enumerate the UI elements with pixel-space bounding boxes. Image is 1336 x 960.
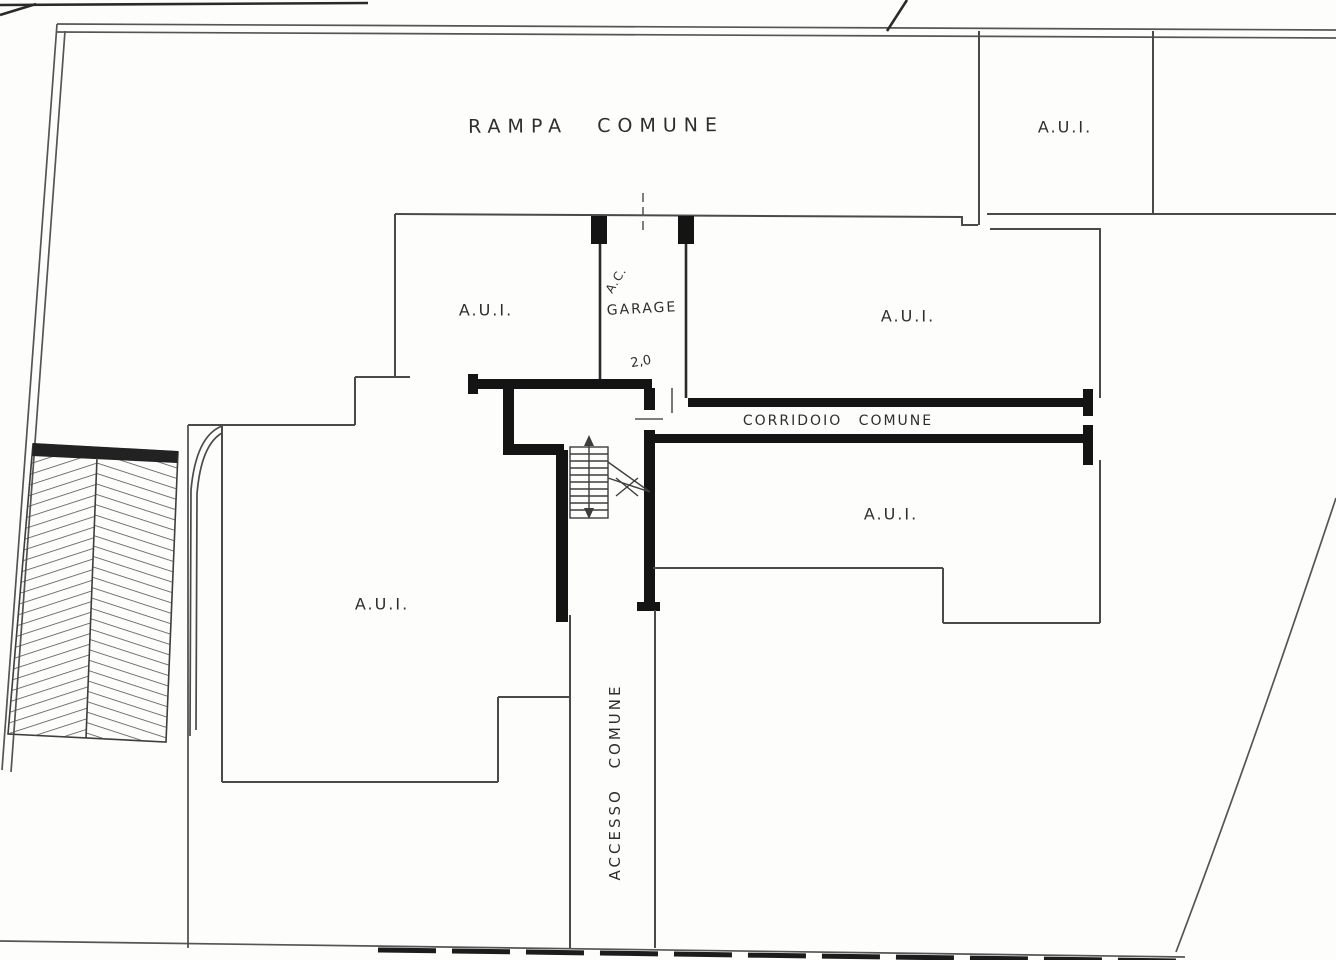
- rampa-comune-label: RAMPA COMUNE: [468, 114, 724, 138]
- unit-lower-right-label: A.U.I.: [864, 505, 918, 524]
- lower-right-unit-outline: [653, 460, 1100, 623]
- garage-pillar-right: [678, 216, 694, 244]
- staircase: [570, 444, 650, 518]
- floorplan-page: RAMPA COMUNE A.U.I. A.U.I. A.U.I. A.U.I.…: [0, 0, 1336, 960]
- unit-top-right-label: A.U.I.: [1038, 118, 1092, 137]
- unit-upper-left-label: A.U.I.: [459, 301, 513, 320]
- ramp-hatch-area: [8, 443, 178, 742]
- left-units-outline: [188, 214, 570, 782]
- unit-upper-right-label: A.U.I.: [881, 307, 935, 326]
- parcel-boundary: [0, 24, 1336, 957]
- unit-lower-left-label: A.U.I.: [355, 595, 409, 614]
- floorplan-linework: [0, 0, 1336, 960]
- corridoio-comune-label: CORRIDOIO COMUNE: [743, 413, 933, 429]
- rampa-partition: [395, 31, 1336, 398]
- stair-core-walls: [468, 374, 660, 622]
- garage-pillar-left: [591, 216, 607, 244]
- accesso-comune-label: ACCESSO COMUNE: [606, 684, 624, 881]
- side-path-lines: [188, 425, 222, 948]
